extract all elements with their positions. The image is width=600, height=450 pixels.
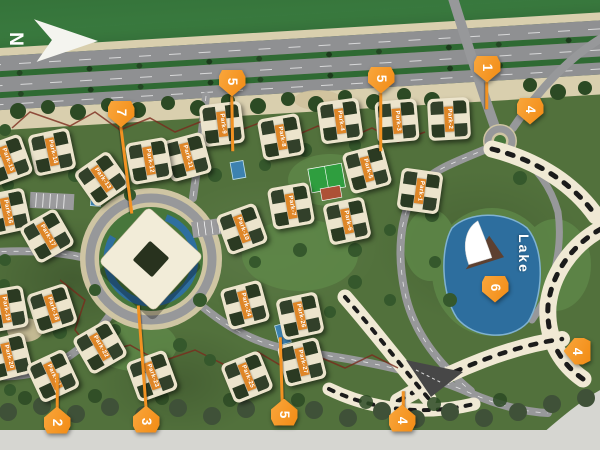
marker-number: 1 xyxy=(474,54,501,81)
map-marker[interactable]: 6 xyxy=(482,276,509,303)
park-building[interactable]: Park-8 xyxy=(256,112,307,163)
marker-number: 4 xyxy=(564,338,591,365)
marker-number: 6 xyxy=(482,274,509,301)
map-marker[interactable]: 1 xyxy=(474,56,501,83)
park-building[interactable]: Park-2 xyxy=(426,96,472,142)
marker-stem xyxy=(380,93,383,151)
park-building[interactable]: Park-4 xyxy=(315,96,365,146)
park-building[interactable]: Park-7 xyxy=(266,181,317,232)
north-arrow-icon xyxy=(34,14,98,66)
map-marker[interactable]: 4 xyxy=(517,98,544,125)
map-marker[interactable]: 5 xyxy=(271,399,298,426)
marker-number: 4 xyxy=(389,407,416,434)
park-building[interactable]: Park-26 xyxy=(274,290,326,342)
map-marker[interactable]: 5 xyxy=(219,70,246,97)
marker-number: 3 xyxy=(133,408,160,435)
marker-number: 7 xyxy=(108,99,135,126)
lake-label: Lake xyxy=(516,234,532,274)
marker-number: 5 xyxy=(219,68,246,95)
marker-number: 5 xyxy=(368,65,395,92)
marker-number: 4 xyxy=(517,96,544,123)
map-marker[interactable]: 2 xyxy=(44,407,71,434)
map-marker[interactable]: 4 xyxy=(564,338,591,365)
park-building[interactable]: Park-12 xyxy=(124,136,175,187)
building-name-tag: Park-2 xyxy=(444,106,454,131)
north-indicator: N xyxy=(14,12,100,70)
map-marker[interactable]: 5 xyxy=(368,67,395,94)
masterplan-map: N Park-1 Park-2 Park-3 Park-4 Park-5 Par… xyxy=(0,0,600,450)
marker-number: 2 xyxy=(44,409,71,436)
marker-number: 5 xyxy=(271,401,298,428)
map-marker[interactable]: 4 xyxy=(389,405,416,432)
north-label: N xyxy=(4,32,26,46)
park-building[interactable]: Park-1 xyxy=(395,166,445,216)
map-marker[interactable]: 7 xyxy=(108,101,135,128)
park-building[interactable]: Park-6 xyxy=(321,195,373,247)
marker-stem xyxy=(486,82,489,109)
map-marker[interactable]: 3 xyxy=(133,406,160,433)
